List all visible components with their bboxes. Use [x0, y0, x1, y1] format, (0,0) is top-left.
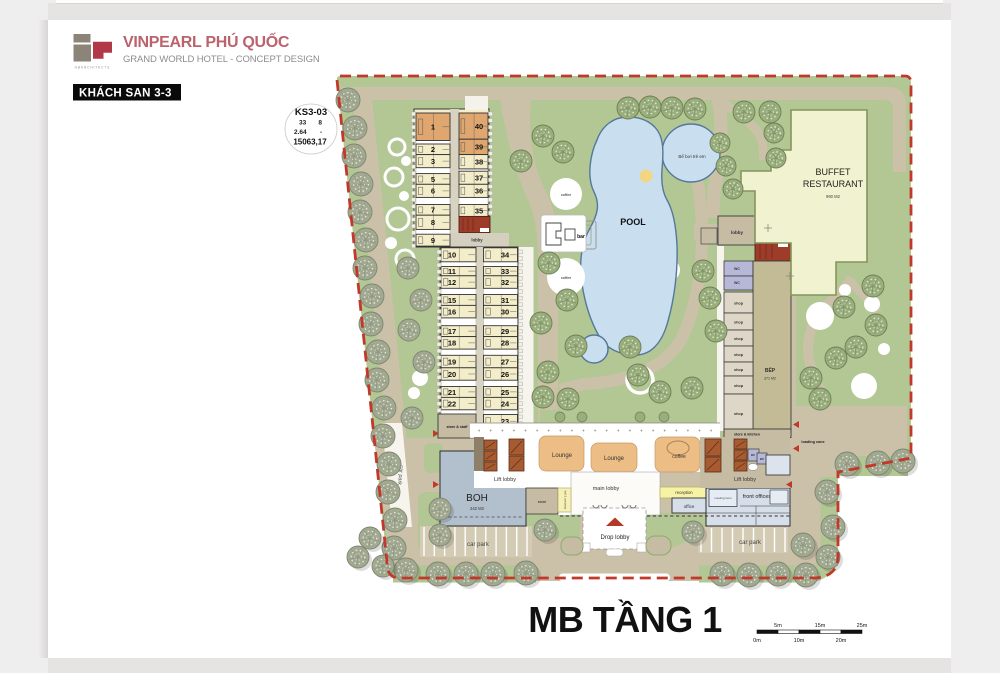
svg-text:17: 17 [448, 327, 456, 336]
svg-text:36: 36 [475, 187, 483, 196]
svg-text:990 M2: 990 M2 [826, 194, 841, 199]
svg-text:bell & concierge: bell & concierge [564, 491, 568, 510]
svg-text:lobby: lobby [471, 238, 483, 243]
svg-text:15m: 15m [815, 623, 826, 629]
svg-text:WC: WC [734, 267, 740, 271]
svg-text:RESTAURANT: RESTAURANT [803, 179, 864, 189]
svg-text:KHÁCH SAN 3-3: KHÁCH SAN 3-3 [79, 87, 172, 100]
svg-text:38: 38 [475, 158, 483, 167]
svg-text:5m: 5m [774, 623, 782, 629]
svg-text:12: 12 [448, 278, 456, 287]
svg-text:8: 8 [431, 218, 435, 227]
svg-text:39: 39 [475, 143, 483, 152]
svg-text:store & staff: store & staff [447, 425, 469, 429]
svg-text:33: 33 [501, 267, 509, 276]
svg-text:MB TẦNG 1: MB TẦNG 1 [528, 599, 722, 640]
svg-text:front offices: front offices [743, 494, 772, 500]
svg-text:BOH: BOH [466, 493, 488, 504]
svg-text:3: 3 [431, 157, 435, 166]
svg-text:VINPEARL PHÚ QUỐC: VINPEARL PHÚ QUỐC [123, 31, 290, 51]
svg-text:BUFFET: BUFFET [816, 167, 852, 177]
svg-text:Lounge: Lounge [552, 453, 573, 459]
svg-text:371 M2: 371 M2 [764, 377, 776, 381]
svg-text:27: 27 [501, 357, 509, 366]
svg-text:2: 2 [431, 145, 435, 154]
svg-text:H B A R C H I T E C T S: H B A R C H I T E C T S [75, 66, 110, 70]
svg-text:reception: reception [675, 490, 693, 495]
svg-text:GRAND WORLD HOTEL - CONCEPT DE: GRAND WORLD HOTEL - CONCEPT DESIGN [123, 54, 320, 65]
svg-text:office: office [684, 504, 695, 509]
svg-text:Lift lobby: Lift lobby [494, 477, 516, 483]
svg-text:bar: bar [577, 234, 585, 240]
svg-text:shop: shop [734, 337, 744, 341]
svg-text:shop: shop [734, 353, 744, 357]
svg-text:shop: shop [734, 412, 744, 416]
svg-text:37: 37 [475, 174, 483, 183]
svg-text:store: store [538, 500, 546, 504]
svg-text:KS3-03: KS3-03 [295, 107, 327, 118]
svg-text:-: - [320, 129, 322, 136]
svg-text:BẾP: BẾP [765, 367, 776, 374]
svg-text:40: 40 [475, 122, 483, 131]
svg-text:POOL: POOL [620, 217, 646, 227]
svg-text:19: 19 [448, 357, 456, 366]
svg-text:shop: shop [734, 301, 744, 305]
svg-text:15063,17: 15063,17 [293, 138, 327, 147]
svg-text:loading zone: loading zone [801, 440, 824, 444]
svg-text:0m: 0m [753, 638, 761, 644]
svg-text:29: 29 [501, 327, 509, 336]
svg-text:242 M2: 242 M2 [470, 506, 485, 511]
svg-text:32: 32 [501, 278, 509, 287]
svg-text:10m: 10m [794, 638, 805, 644]
svg-text:Drop lobby: Drop lobby [600, 535, 629, 541]
svg-text:26: 26 [501, 370, 509, 379]
svg-text:meeting room: meeting room [714, 496, 732, 500]
svg-text:shop: shop [734, 384, 744, 388]
svg-text:16: 16 [448, 307, 456, 316]
svg-text:21: 21 [448, 388, 456, 397]
svg-text:20m: 20m [836, 638, 847, 644]
svg-text:coffee: coffee [561, 276, 571, 280]
svg-text:22: 22 [448, 399, 456, 408]
svg-text:car park: car park [467, 542, 490, 548]
svg-text:WC: WC [760, 457, 764, 461]
svg-text:WC: WC [751, 453, 755, 457]
svg-text:10: 10 [448, 251, 456, 260]
svg-text:Bể bơi trẻ em: Bể bơi trẻ em [678, 153, 705, 159]
svg-text:9: 9 [431, 236, 435, 245]
svg-text:2.64: 2.64 [294, 129, 307, 136]
svg-text:35: 35 [475, 206, 483, 215]
svg-text:24: 24 [501, 399, 510, 408]
svg-text:28: 28 [501, 339, 509, 348]
svg-text:lobby: lobby [731, 230, 743, 235]
svg-text:15: 15 [448, 296, 456, 305]
svg-text:7: 7 [431, 206, 435, 215]
svg-text:5: 5 [431, 175, 435, 184]
svg-text:shop: shop [734, 368, 744, 372]
svg-text:20: 20 [448, 370, 456, 379]
svg-text:Lift lobby: Lift lobby [734, 477, 756, 483]
svg-text:1: 1 [431, 123, 435, 132]
svg-text:11: 11 [448, 267, 456, 276]
svg-text:car park: car park [739, 540, 762, 546]
svg-text:main lobby: main lobby [593, 486, 620, 492]
svg-text:31: 31 [501, 296, 509, 305]
svg-text:25m: 25m [857, 623, 868, 629]
svg-text:33: 33 [299, 120, 307, 127]
svg-text:store & kitchen: store & kitchen [734, 433, 760, 437]
svg-text:30: 30 [501, 307, 509, 316]
svg-text:34: 34 [501, 251, 510, 260]
svg-text:coffee: coffee [561, 193, 571, 197]
svg-text:18: 18 [448, 339, 456, 348]
svg-text:WC: WC [734, 281, 740, 285]
svg-text:shop: shop [734, 320, 744, 324]
svg-text:Lounge: Lounge [604, 456, 625, 462]
svg-text:6: 6 [431, 187, 435, 196]
svg-text:25: 25 [501, 388, 509, 397]
svg-text:coffee: coffee [672, 454, 686, 460]
svg-text:8: 8 [318, 120, 322, 127]
